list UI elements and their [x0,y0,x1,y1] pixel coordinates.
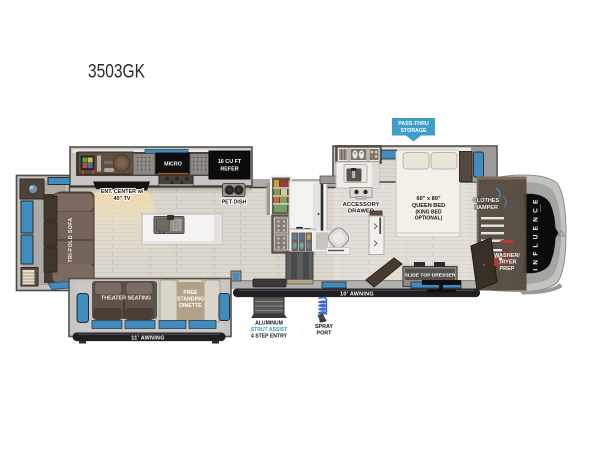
svg-text:11' AWNING: 11' AWNING [131,336,164,342]
svg-text:TRI-FOLD SOFA: TRI-FOLD SOFA [68,217,74,262]
svg-text:PET DISH: PET DISH [222,200,247,206]
svg-text:60" x 80": 60" x 80" [417,196,441,202]
svg-text:QUEEN BED: QUEEN BED [412,203,445,209]
svg-text:16 CU FT: 16 CU FT [218,159,242,165]
svg-text:THEATER SEATING: THEATER SEATING [101,296,151,302]
svg-text:HAMPER: HAMPER [474,205,498,211]
svg-text:DINETTE: DINETTE [179,303,202,309]
svg-text:SPRAY: SPRAY [315,324,333,330]
svg-text:FREE: FREE [183,290,198,296]
svg-text:CLOTHES: CLOTHES [473,198,500,204]
svg-text:OPTIONAL): OPTIONAL) [415,216,443,222]
svg-text:3503GK: 3503GK [88,61,145,83]
svg-text:PORT: PORT [317,331,333,337]
svg-text:40" TV: 40" TV [114,196,131,202]
svg-text:4 STEP ENTRY: 4 STEP ENTRY [251,334,288,340]
svg-text:PREP: PREP [500,266,515,272]
svg-text:MICRO: MICRO [164,162,182,168]
svg-text:10' AWNING: 10' AWNING [340,292,374,298]
svg-text:ALUMINUM: ALUMINUM [255,321,283,327]
svg-text:INFLUENCE: INFLUENCE [533,195,540,270]
svg-text:STORAGE: STORAGE [400,128,427,134]
svg-text:STRUT ASSIST: STRUT ASSIST [251,327,288,333]
svg-text:REFER: REFER [220,166,238,172]
svg-text:ACCESSORY: ACCESSORY [342,202,379,208]
svg-text:PASS-THRU: PASS-THRU [398,121,429,127]
svg-text:ENT. CENTER w/: ENT. CENTER w/ [101,189,144,195]
svg-text:DRYER: DRYER [497,260,516,266]
svg-text:STANDING: STANDING [177,297,204,303]
svg-text:SLIDE TOP DRESSER: SLIDE TOP DRESSER [405,272,456,278]
